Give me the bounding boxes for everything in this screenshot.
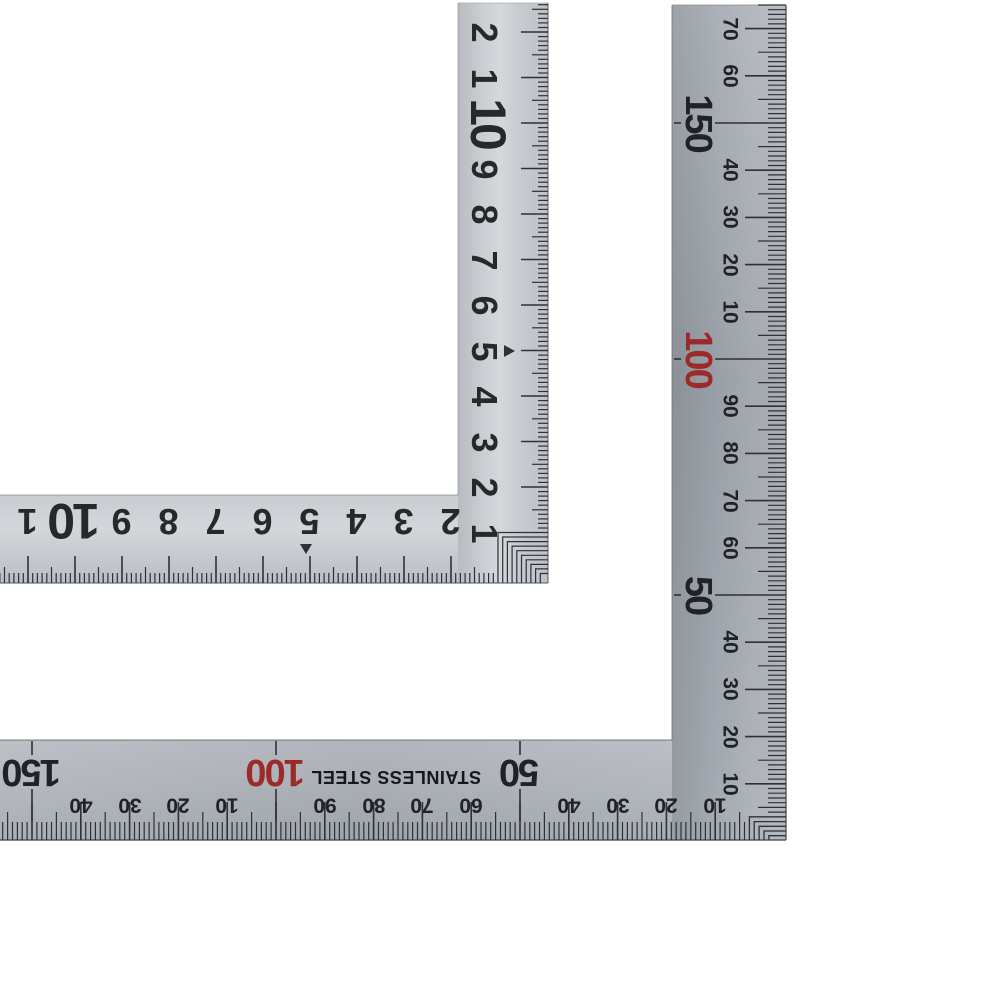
ruler-ticks-and-edges [0,0,1000,1000]
r2v-ticks [745,5,786,812]
center-marker-down [300,544,312,554]
corner-wrap-ticks [498,533,786,841]
r1v-ticks [521,5,548,528]
metal-edges [0,3,786,840]
center-marker-right [504,345,515,357]
r1h-ticks [0,556,493,583]
major-unit-lines [32,123,746,821]
product-photo: 1234567891012234567891011020304050607080… [0,0,1000,1000]
r2h-ticks [3,802,745,840]
